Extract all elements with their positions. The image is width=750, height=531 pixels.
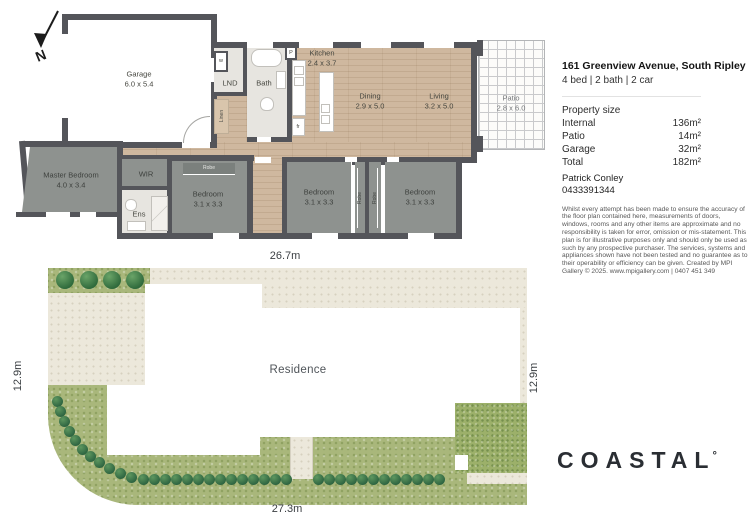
- shrub-icon: [226, 474, 237, 485]
- label-fridge: fr: [296, 124, 299, 130]
- wall-segment: [62, 14, 216, 20]
- shrub-icon: [412, 474, 423, 485]
- shrub-icon: [237, 474, 248, 485]
- dimension-left: 12.9m: [12, 357, 24, 395]
- path-strip: [467, 473, 527, 484]
- label-wir: WIR: [139, 170, 154, 179]
- shrub-icon: [115, 468, 126, 479]
- window-opening: [46, 212, 70, 217]
- window-opening: [299, 42, 333, 48]
- bathtub: [251, 49, 282, 67]
- window-opening: [312, 233, 338, 239]
- paving-strip: [262, 284, 527, 308]
- room-name: Dining: [356, 91, 385, 101]
- room-dims: 3.1 x 3.3: [405, 197, 435, 207]
- agent-block: Patrick Conley 0433391344: [562, 173, 623, 197]
- row-label: Patio: [562, 130, 585, 143]
- bath-toilet: [260, 97, 274, 111]
- tree-icon: [126, 271, 144, 289]
- shrub-icon: [55, 406, 66, 417]
- room-name: Master Bedroom: [43, 170, 98, 180]
- shrub-icon: [171, 474, 182, 485]
- shrub-icon: [390, 474, 401, 485]
- garage-door-opening: [62, 34, 68, 118]
- sink-icon: [294, 66, 304, 75]
- room-name: Bedroom: [405, 187, 435, 197]
- wall-segment: [211, 92, 247, 96]
- room-name: Living: [425, 91, 454, 101]
- room-label-patio: Patio 2.8 x 6.0: [497, 93, 526, 113]
- window-opening: [247, 42, 273, 48]
- degree-mark: °: [712, 450, 716, 462]
- row-value: 32m²: [678, 143, 701, 156]
- dimension-top: 26.7m: [250, 250, 320, 262]
- paving-bottom-rect: [290, 437, 313, 479]
- residence-step: [107, 383, 147, 455]
- shrub-icon: [335, 474, 346, 485]
- residence-label: Residence: [258, 364, 338, 376]
- label-washer: w: [219, 58, 223, 64]
- window-opening: [213, 233, 239, 239]
- path-step: [455, 455, 468, 470]
- table-row: Internal 136m²: [562, 117, 701, 130]
- room-label-dining: Dining 2.9 x 5.0: [356, 91, 385, 111]
- room-dims: 6.0 x 5.4: [125, 79, 154, 89]
- bath-vanity: [276, 71, 286, 89]
- window-opening: [80, 212, 96, 217]
- door-opening: [257, 137, 271, 142]
- room-dims: 4.0 x 3.4: [43, 180, 98, 190]
- wall-segment: [24, 141, 122, 147]
- row-value: 136m²: [673, 117, 701, 130]
- room-name: Bedroom: [304, 187, 334, 197]
- north-label: N: [33, 46, 48, 64]
- row-label: Garage: [562, 143, 595, 156]
- shrub-icon: [324, 474, 335, 485]
- label-robe-bed2: Robe: [203, 165, 215, 171]
- label-robe-bed3: Robe: [357, 192, 363, 204]
- table-row: Total 182m²: [562, 156, 701, 169]
- shower: [151, 196, 168, 231]
- room-label-garage: Garage 6.0 x 5.4: [125, 69, 154, 89]
- row-value: 182m²: [673, 156, 701, 169]
- shrub-icon: [182, 474, 193, 485]
- island-sink-icon: [321, 104, 330, 113]
- floor-hall-strip: [252, 157, 282, 237]
- shrub-icon: [423, 474, 434, 485]
- tree-icon: [56, 271, 74, 289]
- room-dims: 2.8 x 6.0: [497, 103, 526, 113]
- wall-segment: [243, 47, 247, 96]
- vanity: [127, 221, 146, 231]
- room-dims: 3.1 x 3.3: [304, 197, 334, 207]
- shrub-icon: [368, 474, 379, 485]
- shrub-icon: [149, 474, 160, 485]
- table-row: Garage 32m²: [562, 143, 701, 156]
- shrub-icon: [346, 474, 357, 485]
- property-size-table: Property size Internal 136m² Patio 14m² …: [562, 96, 701, 169]
- label-lnd: LND: [222, 79, 237, 88]
- label-linen: Linen: [219, 110, 225, 122]
- wall-segment: [477, 136, 483, 152]
- room-name: Garage: [125, 69, 154, 79]
- shrub-icon: [94, 457, 105, 468]
- robe-shelf-line: [183, 174, 235, 175]
- disclaimer-text: Whilst every attempt has been made to en…: [562, 206, 749, 276]
- shrub-icon: [59, 416, 70, 427]
- shrub-icon: [270, 474, 281, 485]
- shrub-icon: [401, 474, 412, 485]
- agent-phone: 0433391344: [562, 185, 623, 197]
- room-label-bedroom-4: Bedroom 3.1 x 3.3: [405, 187, 435, 207]
- room-dims: 3.1 x 3.3: [193, 199, 223, 209]
- room-dims: 3.2 x 5.0: [425, 101, 454, 111]
- listing-summary: 4 bed | 2 bath | 2 car: [562, 75, 748, 86]
- listing-address: 161 Greenview Avenue, South Ripley: [562, 60, 748, 72]
- room-label-bedroom-2: Bedroom 3.1 x 3.3: [193, 189, 223, 209]
- window-opening: [408, 233, 434, 239]
- shrub-icon: [215, 474, 226, 485]
- dimension-bottom: 27.3m: [252, 503, 322, 515]
- shrub-icon: [193, 474, 204, 485]
- row-label: Internal: [562, 117, 595, 130]
- room-dims: 2.9 x 5.0: [356, 101, 385, 111]
- shrub-icon: [379, 474, 390, 485]
- tree-icon: [103, 271, 121, 289]
- paving-right-strip: [520, 308, 527, 403]
- window-opening: [361, 42, 391, 48]
- shrub-icon: [52, 396, 63, 407]
- label-ens: Ens: [133, 210, 146, 219]
- label-bath: Bath: [256, 79, 271, 88]
- room-name: Patio: [497, 93, 526, 103]
- shrub-icon: [160, 474, 171, 485]
- shrub-icon: [259, 474, 270, 485]
- room-label-bedroom-3: Bedroom 3.1 x 3.3: [304, 187, 334, 207]
- shrub-icon: [248, 474, 259, 485]
- brand-name: COASTAL: [557, 447, 715, 473]
- row-value: 14m²: [678, 130, 701, 143]
- room-name: Bedroom: [193, 189, 223, 199]
- residence-step: [145, 437, 260, 455]
- paving-top-strip: [150, 268, 527, 284]
- shrub-icon: [281, 474, 292, 485]
- agent-name: Patrick Conley: [562, 173, 623, 185]
- wall-segment: [477, 40, 483, 56]
- wall-segment: [247, 157, 253, 239]
- room-label-kitchen: Kitchen 2.4 x 3.7: [308, 48, 337, 68]
- room-label-master: Master Bedroom 4.0 x 3.4: [43, 170, 98, 190]
- wall-segment: [456, 157, 462, 239]
- property-size-title: Property size: [562, 104, 620, 117]
- room-label-living: Living 3.2 x 5.0: [425, 91, 454, 111]
- shrub-icon: [434, 474, 445, 485]
- window-opening: [424, 42, 454, 48]
- shrub-icon: [126, 472, 137, 483]
- driveway: [48, 293, 145, 385]
- island-sink-icon: [321, 115, 330, 124]
- floorplan-page: N: [0, 0, 750, 531]
- row-label: Total: [562, 156, 583, 169]
- dimension-right: 12.9m: [528, 359, 540, 397]
- table-row: Patio 14m²: [562, 130, 701, 143]
- room-dims: 2.4 x 3.7: [308, 58, 337, 68]
- room-name: Kitchen: [308, 48, 337, 58]
- label-pantry: P: [289, 50, 293, 56]
- shrub-icon: [138, 474, 149, 485]
- shrub-icon: [104, 463, 115, 474]
- shrub-icon: [357, 474, 368, 485]
- label-robe-bed4: Robe: [372, 192, 378, 204]
- property-size-title-row: Property size: [562, 104, 701, 117]
- brand-logo: COASTAL°: [557, 447, 717, 474]
- shrub-icon: [204, 474, 215, 485]
- door-opening: [255, 157, 271, 163]
- tree-icon: [80, 271, 98, 289]
- shrub-icon: [313, 474, 324, 485]
- cooktop-icon: [294, 77, 304, 86]
